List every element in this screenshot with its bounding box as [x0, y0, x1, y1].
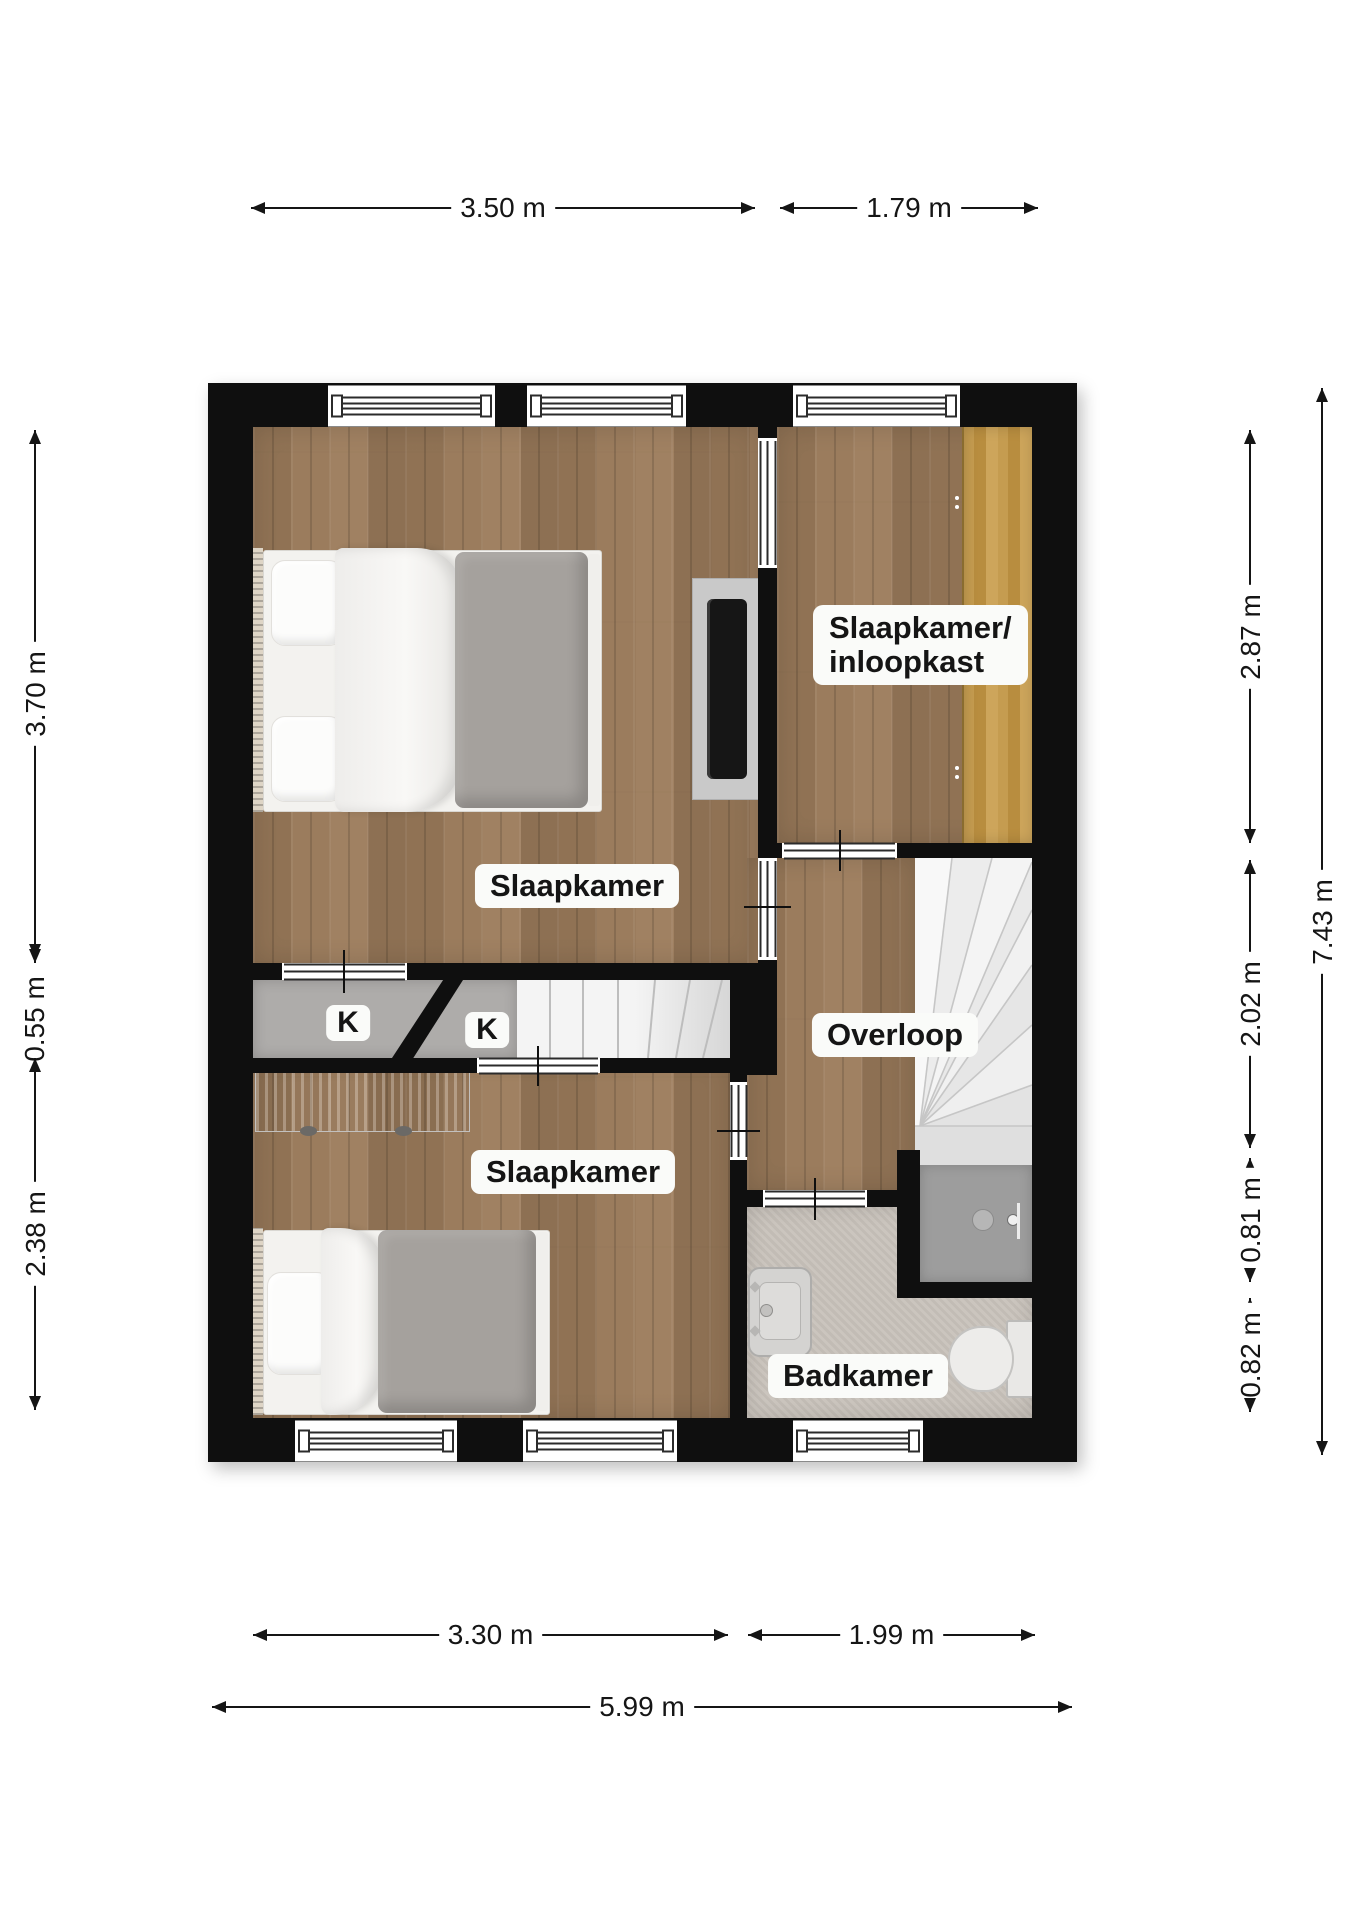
wall-shower-left [897, 1150, 920, 1298]
window-glazing [305, 1432, 447, 1451]
dim-bottom-total-width: 5.99 m [212, 1706, 1072, 1708]
dim-left-bedroom-top-depth: 3.70 m [34, 430, 36, 958]
tv [707, 599, 747, 779]
window-glazing [533, 1432, 667, 1451]
door-tick [814, 1178, 816, 1220]
window-top-2 [527, 385, 686, 427]
dim-label: 5.99 m [590, 1689, 694, 1725]
wall-junction-block [730, 963, 777, 1075]
dim-label: 2.87 m [1233, 585, 1269, 689]
single-bed [253, 1228, 548, 1415]
dresser [255, 1072, 470, 1132]
window-post [331, 395, 343, 418]
bed-duvet [455, 552, 588, 808]
double-bed [253, 548, 600, 812]
dim-label: 1.99 m [840, 1617, 944, 1653]
bed-sheet [335, 548, 463, 812]
dim-left-closet-row-arrow [34, 885, 36, 963]
dim-label: 1.79 m [857, 190, 961, 226]
room-label-text: K [476, 1013, 498, 1046]
wardrobe-handle-dot [955, 496, 959, 500]
window-post [480, 395, 492, 418]
floorplan-canvas: Slaapkamer Slaapkamer/ inloopkast Overlo… [0, 0, 1358, 1920]
room-label-text: Overloop [827, 1017, 963, 1052]
window-glazing [338, 397, 485, 416]
window-top-1 [328, 385, 495, 427]
wardrobe-handle-dot [955, 775, 959, 779]
door-bedroom-to-walkin-closet [758, 438, 777, 568]
wardrobe-handle-dot [955, 505, 959, 509]
door-tick [744, 906, 791, 908]
window-post [442, 1430, 454, 1453]
bed-headboard [253, 548, 263, 812]
dim-label-closet-row: 0.55 m [17, 967, 53, 1071]
dim-right-closet-room-depth: 2.87 m [1249, 430, 1251, 843]
room-label-text: Slaapkamer [490, 868, 664, 903]
dim-top-bedroom-width: 3.50 m [251, 207, 755, 209]
room-label-text: K [337, 1006, 359, 1039]
window-bottom-3 [793, 1420, 923, 1462]
window-bottom-1 [295, 1420, 457, 1462]
window-post [796, 1430, 808, 1453]
dim-right-shower-depth: 0.81 m [1249, 1158, 1251, 1282]
window-glazing [803, 397, 950, 416]
window-glazing [537, 397, 676, 416]
window-post [662, 1430, 674, 1453]
room-label-bedroom-top: Slaapkamer [475, 864, 679, 908]
wardrobe-handle-dot [955, 766, 959, 770]
winder-stairs [915, 858, 1032, 1165]
dim-right-toilet-depth: 0.82 m [1249, 1298, 1251, 1412]
door-bedroom-top-to-landing [758, 858, 777, 960]
straight-stairs [517, 980, 730, 1058]
door-tick [717, 1130, 760, 1132]
dim-right-total-height: 7.43 m [1321, 388, 1323, 1455]
window-glazing [803, 1432, 913, 1451]
sink-faucet [760, 1304, 773, 1317]
dim-label: 2.02 m [1233, 952, 1269, 1056]
room-label-text: Slaapkamer [486, 1154, 660, 1189]
window-post [796, 395, 808, 418]
dim-label: 3.50 m [451, 190, 555, 226]
dim-label: 7.43 m [1305, 870, 1341, 974]
dim-label: 2.38 m [18, 1182, 54, 1286]
dim-label: 3.30 m [439, 1617, 543, 1653]
bed-foot-edge [588, 554, 600, 806]
sink [748, 1267, 812, 1357]
door-tick [343, 950, 345, 993]
wall-left [208, 383, 253, 1462]
room-label-bedroom-bottom: Slaapkamer [471, 1150, 675, 1194]
room-label-line1: Slaapkamer/ [829, 611, 1012, 645]
window-post [945, 395, 957, 418]
bed-sheet [321, 1228, 386, 1415]
pillow [271, 716, 343, 802]
dim-right-landing-depth: 2.02 m [1249, 860, 1251, 1148]
dim-bottom-bedroom-width: 3.30 m [253, 1634, 728, 1636]
room-label-line2: inloopkast [829, 645, 1012, 679]
window-bottom-2 [523, 1420, 677, 1462]
dim-left-bedroom-bottom-depth: 2.38 m [34, 1058, 36, 1410]
shower-arm-icon [1017, 1203, 1020, 1239]
window-post [298, 1430, 310, 1453]
tv-console [692, 578, 760, 800]
window-top-3 [793, 385, 960, 427]
dim-top-closet-room-width: 1.79 m [780, 207, 1038, 209]
dim-label: 0.82 m [1233, 1303, 1269, 1407]
bed-foot-edge [536, 1232, 548, 1411]
shower-drain [972, 1209, 994, 1231]
wall-shower-bottom [897, 1282, 1032, 1298]
window-post [908, 1430, 920, 1453]
bed-headboard [253, 1228, 263, 1415]
dresser-knob [300, 1126, 317, 1136]
dim-bottom-bathroom-width: 1.99 m [748, 1634, 1035, 1636]
bed-duvet [378, 1230, 536, 1413]
dim-label: 3.70 m [18, 642, 54, 746]
dresser-knob [395, 1126, 412, 1136]
dim-label: 0.81 m [1233, 1168, 1269, 1272]
door-tick [839, 830, 841, 871]
window-post [530, 395, 542, 418]
door-tick [537, 1046, 539, 1086]
toilet-bowl [948, 1326, 1014, 1392]
wall-right [1032, 383, 1077, 1462]
room-label-closet-right: K [465, 1012, 509, 1048]
room-label-landing: Overloop [812, 1013, 978, 1057]
room-label-text: Badkamer [783, 1358, 933, 1393]
pillow [271, 560, 343, 646]
room-label-bathroom: Badkamer [768, 1354, 948, 1398]
door-bedroom-bottom-to-landing [730, 1082, 747, 1160]
shower [920, 1165, 1032, 1282]
window-post [526, 1430, 538, 1453]
window-post [671, 395, 683, 418]
room-label-walkin-closet: Slaapkamer/ inloopkast [813, 605, 1028, 685]
room-label-closet-left: K [326, 1005, 370, 1041]
